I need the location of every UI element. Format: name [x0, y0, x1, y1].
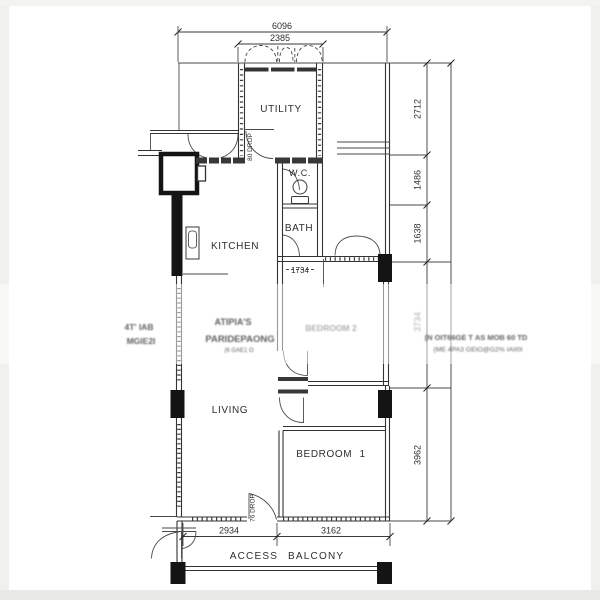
room-label-kitchen: KITCHEN [211, 241, 259, 252]
kitchen-sink [186, 227, 199, 259]
room-label-bath: BATH [285, 223, 313, 234]
room-label-utility: UTILITY [260, 104, 301, 115]
watermark-right-2: (ME 4PA3 GEIO@G2% IAII0I [433, 347, 522, 354]
floor-plan-drawing: 6096 2385 UTILITY 80 DROP [0, 0, 600, 600]
party-wall [172, 193, 183, 277]
column [171, 562, 186, 584]
access-balcony-label: ACCESS BALCONY [230, 551, 345, 562]
room-label-living: LIVING [212, 405, 248, 416]
column [378, 390, 392, 418]
dim-overall-width: 6096 [272, 21, 292, 31]
column [377, 562, 392, 584]
drop-80-note: 80 DROP [247, 133, 254, 161]
column [171, 390, 185, 418]
dim-right-2: 1486 [413, 170, 423, 190]
watermark-left-2: MGIE2I [127, 336, 156, 346]
dim-bottom-right: 3162 [321, 526, 341, 536]
room-label-wc: W.C. [289, 168, 311, 178]
dim-interior: 1734 [291, 266, 309, 275]
watermark-band: 4T' IAB MGIE2I ATIPIA'S PARIDEPAONG (6 G… [0, 284, 600, 364]
dim-utility-width: 2385 [270, 33, 290, 43]
column [378, 254, 392, 282]
watermark-right-1: (N OIT66GE T AS MOB 60 TD [425, 333, 528, 342]
dim-right-5: 3962 [413, 445, 423, 465]
drop-76-note: 76 DROP [250, 494, 257, 522]
dim-right-3: 1638 [413, 223, 423, 243]
watermark-center-3: (6 GAE1 O [224, 348, 254, 354]
watermark-center-1: ATIPIA'S [215, 317, 252, 327]
chute-hopper [198, 166, 206, 181]
watermark-center-2: PARIDEPAONG [205, 334, 274, 345]
dim-bottom-left: 2934 [219, 526, 239, 536]
room-label-bedroom1: BEDROOM 1 [296, 449, 365, 460]
dim-right-1: 2712 [413, 99, 423, 119]
watermark-left-1: 4T' IAB [125, 322, 154, 332]
floor-plan-page: 6096 2385 UTILITY 80 DROP [0, 0, 600, 600]
